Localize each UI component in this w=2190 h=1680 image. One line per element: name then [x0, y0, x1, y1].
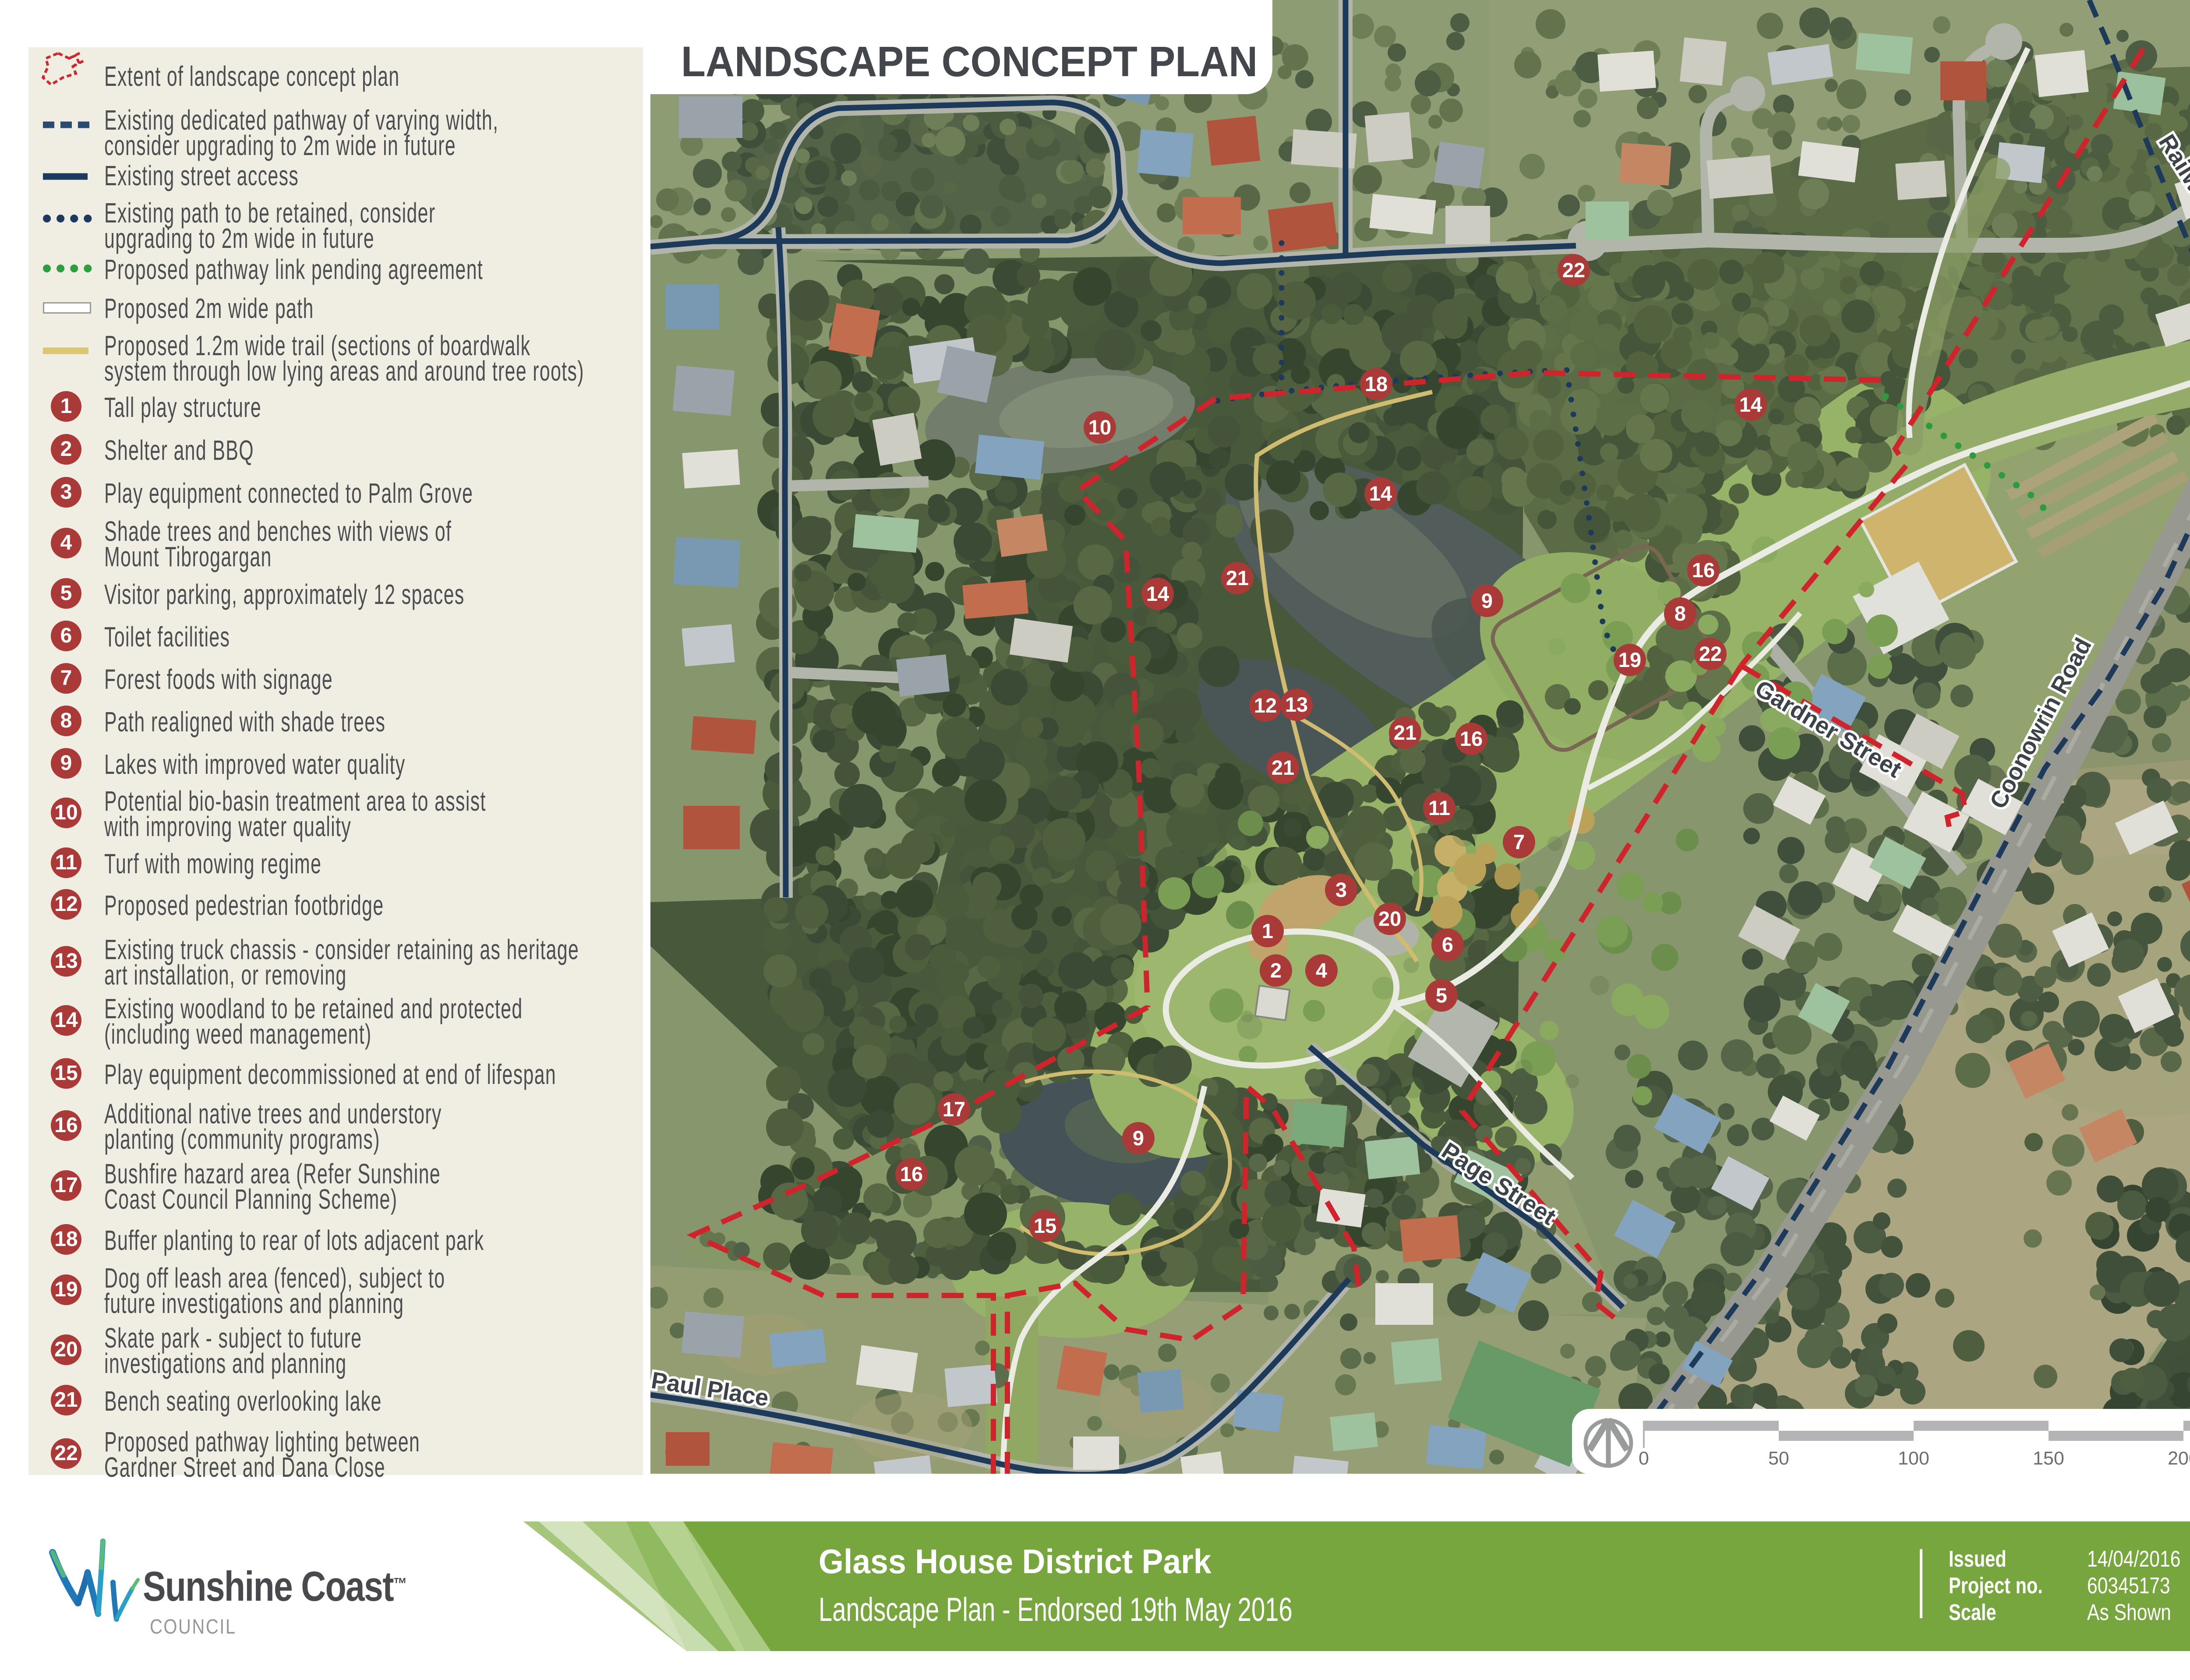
svg-text:18: 18 [1365, 372, 1388, 395]
svg-text:16: 16 [1692, 558, 1715, 582]
svg-text:8: 8 [1674, 602, 1686, 625]
svg-text:20: 20 [1378, 907, 1401, 930]
svg-text:4: 4 [1316, 959, 1327, 982]
svg-text:14: 14 [1146, 582, 1169, 605]
svg-text:6: 6 [1442, 933, 1453, 956]
svg-text:16: 16 [1460, 727, 1483, 750]
svg-text:14: 14 [1739, 393, 1762, 416]
svg-text:21: 21 [1394, 721, 1416, 744]
svg-text:1: 1 [1262, 919, 1273, 942]
svg-text:16: 16 [900, 1162, 923, 1186]
svg-text:0: 0 [1639, 1448, 1649, 1469]
svg-text:3: 3 [1335, 878, 1347, 901]
svg-text:50: 50 [1768, 1448, 1789, 1469]
svg-text:150: 150 [2033, 1448, 2064, 1469]
svg-text:22: 22 [1562, 258, 1585, 282]
svg-text:5: 5 [1436, 984, 1447, 1007]
svg-text:14: 14 [1369, 482, 1392, 505]
svg-text:100: 100 [1898, 1448, 1929, 1469]
svg-text:2: 2 [1270, 959, 1282, 982]
svg-text:9: 9 [1133, 1126, 1144, 1150]
svg-text:21: 21 [1272, 756, 1294, 779]
svg-text:10: 10 [1088, 416, 1111, 439]
svg-text:19: 19 [1618, 648, 1641, 671]
svg-text:22: 22 [1699, 642, 1722, 665]
svg-text:13: 13 [1285, 693, 1308, 716]
svg-text:21: 21 [1226, 566, 1249, 589]
svg-text:200: 200 [2168, 1448, 2190, 1469]
svg-text:9: 9 [1481, 589, 1493, 612]
svg-text:17: 17 [943, 1098, 965, 1121]
svg-text:11: 11 [1428, 796, 1450, 819]
svg-text:15: 15 [1034, 1214, 1056, 1237]
svg-text:12: 12 [1254, 694, 1277, 717]
svg-text:7: 7 [1513, 830, 1525, 854]
